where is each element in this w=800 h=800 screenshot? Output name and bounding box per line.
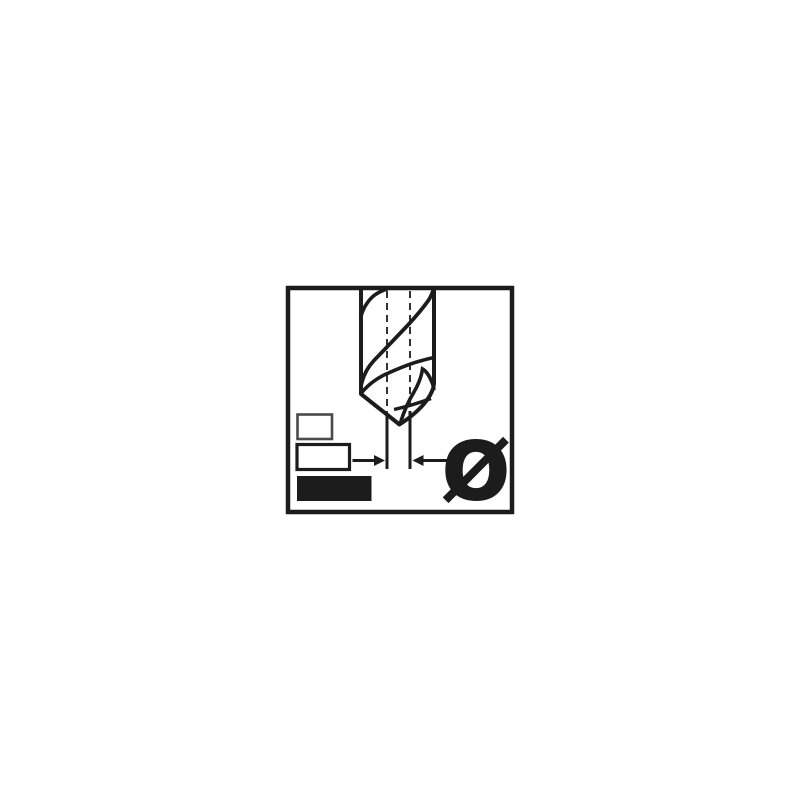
drill-bit-icon: [361, 288, 435, 425]
size-swatch-medium: [297, 445, 350, 470]
arrowhead-right-icon: [374, 455, 385, 466]
size-swatch-small: [298, 415, 333, 440]
dimension-arrows: [353, 455, 448, 466]
dashed-centerlines: [387, 291, 410, 414]
size-swatch-large: [297, 476, 372, 501]
size-legend: [297, 415, 372, 502]
page-background: Ø: [0, 0, 800, 800]
pictogram-canvas: Ø: [0, 0, 800, 800]
dimension-arrow-left: [353, 455, 386, 466]
arrowhead-left-icon: [413, 455, 424, 466]
diameter-symbol: Ø: [442, 426, 509, 518]
